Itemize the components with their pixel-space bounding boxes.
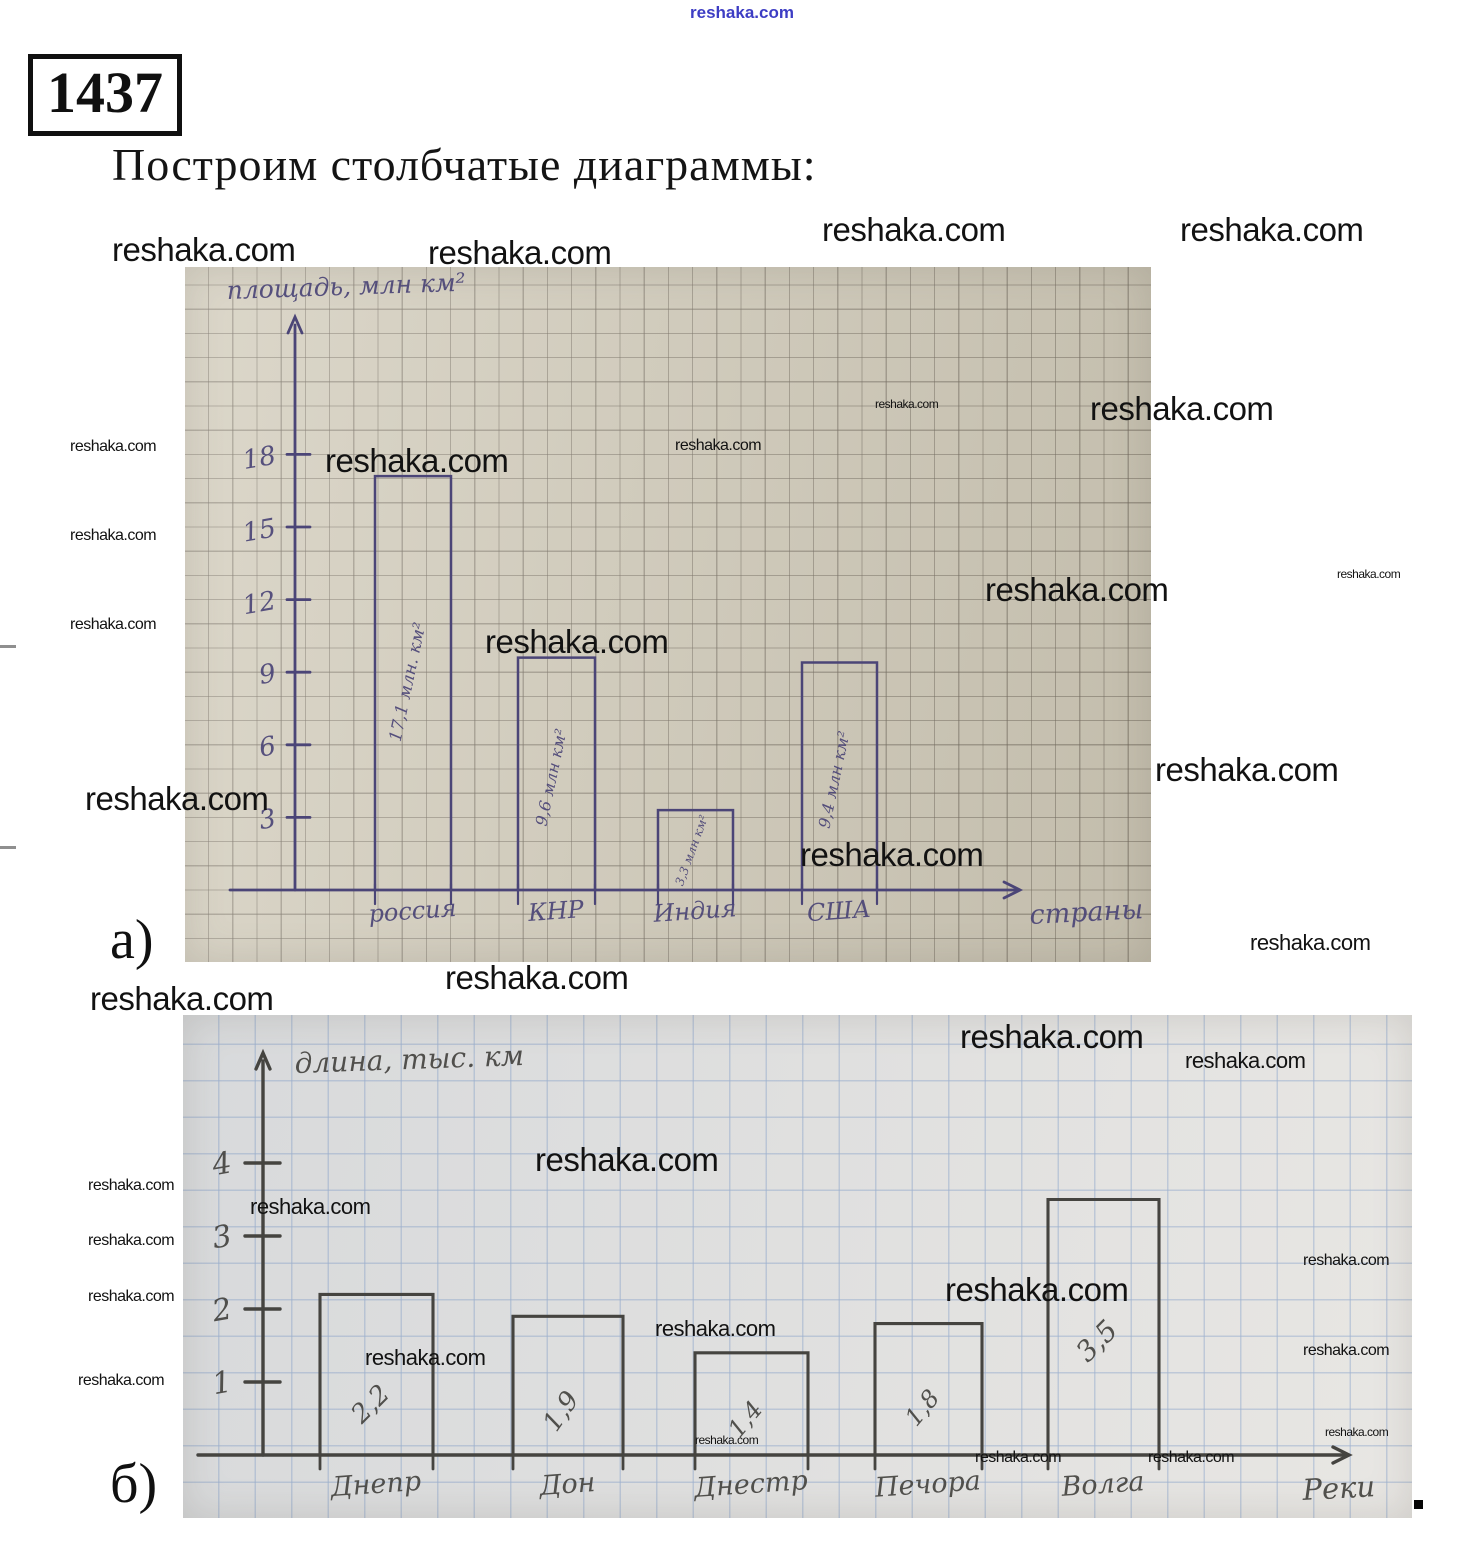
y-tick-label: 18	[240, 441, 278, 476]
watermark-text: reshaka.com	[1090, 392, 1273, 425]
y-tick-label: 9	[257, 659, 279, 691]
bar-value-label: 1,8	[899, 1384, 945, 1431]
category-label: Индия	[651, 894, 737, 928]
chart-b-bar-chart: длина, тыс. кмРеки1234Днепр2,2Дон1,9Днес…	[183, 1015, 1412, 1518]
watermark-text: reshaka.com	[690, 4, 794, 21]
solution-title: Построим столбчатые диаграммы:	[112, 138, 817, 191]
watermark-text: reshaka.com	[1303, 1253, 1389, 1269]
bar-value-label: 9,6 млн км²	[532, 727, 571, 828]
section-label-b: б)	[110, 1452, 157, 1516]
section-label-a: а)	[110, 908, 154, 972]
y-tick-label: 6	[257, 731, 279, 763]
y-tick-label: 2	[209, 1291, 235, 1329]
watermark-text: reshaka.com	[428, 236, 611, 269]
y-axis-title: длина, тыс. км	[294, 1039, 524, 1080]
page-edge-mark	[0, 645, 16, 648]
chart-b-photo: длина, тыс. кмРеки1234Днепр2,2Дон1,9Днес…	[183, 1015, 1412, 1518]
watermark-text: reshaka.com	[485, 625, 668, 658]
watermark-text: reshaka.com	[90, 982, 273, 1015]
watermark-text: reshaka.com	[875, 398, 938, 410]
category-label: КНР	[526, 895, 585, 927]
category-label: Днепр	[329, 1466, 422, 1503]
watermark-text: reshaka.com	[78, 1373, 164, 1389]
x-axis-title: Реки	[1301, 1469, 1376, 1507]
watermark-text: reshaka.com	[88, 1233, 174, 1249]
solution-page: 1437 Построим столбчатые диаграммы: площ…	[0, 0, 1484, 1541]
y-tick-label: 15	[240, 513, 278, 548]
category-label: США	[806, 895, 872, 927]
watermark-text: reshaka.com	[1337, 568, 1400, 580]
watermark-text: reshaka.com	[88, 1178, 174, 1194]
watermark-text: reshaka.com	[695, 1434, 758, 1446]
bar-value-label: 2,2	[345, 1379, 396, 1430]
watermark-text: reshaka.com	[822, 213, 1005, 246]
category-label: Печора	[873, 1465, 982, 1503]
watermark-text: reshaka.com	[1250, 932, 1370, 954]
watermark-text: reshaka.com	[1180, 213, 1363, 246]
chart-a-photo: площадь, млн км²страны369121518россия17,…	[185, 267, 1151, 962]
watermark-text: reshaka.com	[535, 1143, 718, 1176]
category-label: Днестр	[692, 1465, 809, 1504]
watermark-text: reshaka.com	[88, 1289, 174, 1305]
bar-value-label: 17,1 млн. км²	[386, 620, 431, 743]
category-label: россия	[368, 894, 458, 928]
watermark-text: reshaka.com	[800, 838, 983, 871]
chart-a-bar-chart: площадь, млн км²страны369121518россия17,…	[185, 267, 1151, 962]
watermark-text: reshaka.com	[675, 438, 761, 454]
x-axis-title: страны	[1029, 894, 1144, 931]
watermark-text: reshaka.com	[85, 782, 268, 815]
y-tick-label: 1	[210, 1364, 235, 1402]
problem-number-box: 1437	[28, 54, 182, 136]
watermark-text: reshaka.com	[445, 961, 628, 994]
y-tick-label: 3	[210, 1218, 235, 1256]
watermark-text: reshaka.com	[985, 573, 1168, 606]
bar	[513, 1316, 623, 1455]
watermark-text: reshaka.com	[1155, 753, 1338, 786]
y-axis-title: площадь, млн км²	[226, 268, 466, 305]
watermark-text: reshaka.com	[655, 1318, 775, 1340]
watermark-text: reshaka.com	[1148, 1450, 1234, 1466]
watermark-text: reshaka.com	[70, 528, 156, 544]
watermark-text: reshaka.com	[1185, 1050, 1305, 1072]
watermark-text: reshaka.com	[945, 1273, 1128, 1306]
end-of-solution-period	[1414, 1500, 1423, 1509]
y-tick-label: 4	[209, 1145, 235, 1183]
watermark-text: reshaka.com	[365, 1347, 485, 1369]
watermark-text: reshaka.com	[250, 1196, 370, 1218]
bar-value-label: 1,9	[537, 1386, 585, 1437]
y-tick-label: 12	[240, 586, 278, 621]
category-label: Волга	[1059, 1466, 1145, 1503]
watermark-text: reshaka.com	[975, 1450, 1061, 1466]
bar-value-label: 9,4 млн км²	[815, 729, 854, 830]
problem-number: 1437	[47, 60, 163, 125]
watermark-text: reshaka.com	[960, 1020, 1143, 1053]
watermark-text: reshaka.com	[70, 439, 156, 455]
bar	[320, 1294, 433, 1455]
watermark-text: reshaka.com	[70, 617, 156, 633]
page-edge-mark	[0, 846, 16, 849]
category-label: Дон	[537, 1467, 596, 1502]
watermark-text: reshaka.com	[112, 233, 295, 266]
watermark-text: reshaka.com	[1303, 1343, 1389, 1359]
watermark-text: reshaka.com	[1325, 1426, 1388, 1438]
bar-value-label: 3,3 млн км²	[672, 813, 711, 888]
bar-value-label: 3,5	[1069, 1314, 1124, 1369]
watermark-text: reshaka.com	[325, 444, 508, 477]
